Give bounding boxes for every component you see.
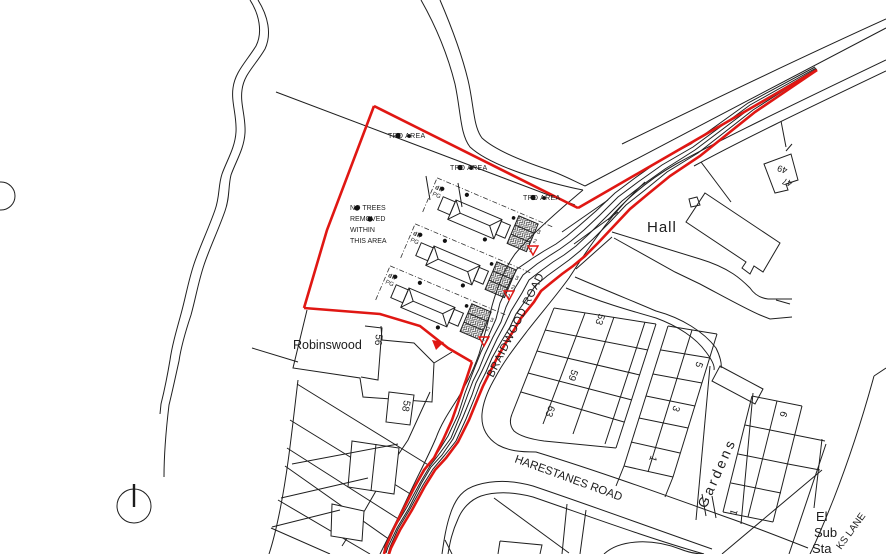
svg-text:WITHIN: WITHIN: [350, 227, 375, 234]
svg-text:TPO AREA: TPO AREA: [388, 133, 425, 140]
svg-text:Sub: Sub: [814, 525, 837, 540]
svg-text:Robinswood: Robinswood: [293, 338, 362, 352]
svg-text:Hall: Hall: [647, 219, 677, 236]
svg-text:56: 56: [372, 334, 384, 347]
svg-text:THIS AREA: THIS AREA: [350, 238, 387, 245]
svg-text:El: El: [816, 509, 828, 524]
svg-text:Sta: Sta: [812, 541, 832, 554]
svg-text:TPO AREA: TPO AREA: [450, 165, 487, 172]
svg-text:TPO AREA: TPO AREA: [523, 195, 560, 202]
